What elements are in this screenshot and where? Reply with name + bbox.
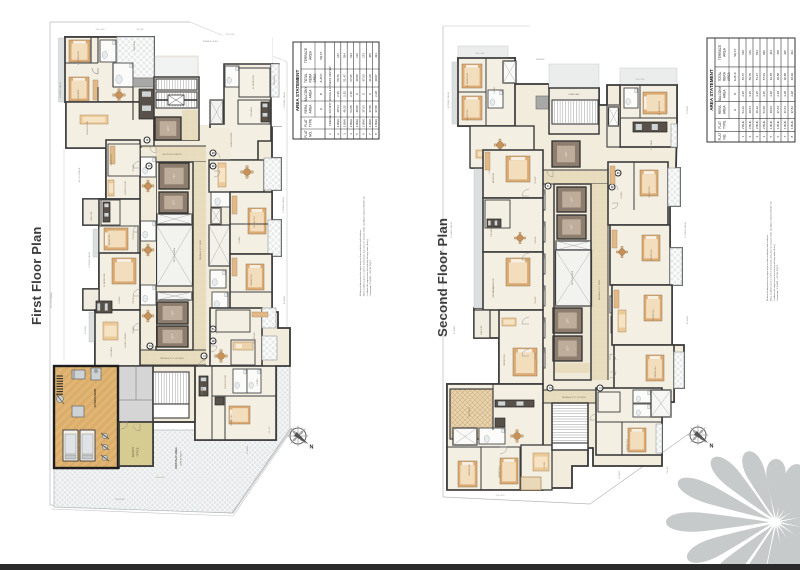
svg-text:- Minor variations up to (+/-): - Minor variations up to (+/-) 3% in act… [362, 195, 365, 297]
svg-text:1 BHK: 1 BHK [790, 121, 794, 129]
svg-text:2.28: 2.28 [790, 91, 794, 97]
svg-text:54.42: 54.42 [741, 106, 745, 114]
svg-text:30M W.LLB STATION: 30M W.LLB STATION [162, 153, 182, 156]
svg-text:TOILET: TOILET [133, 326, 135, 334]
svg-text:37.82: 37.82 [790, 106, 794, 114]
svg-text:50.79: 50.79 [336, 74, 340, 82]
svg-text:A: A [319, 108, 323, 110]
svg-text:M. BEDROOM: M. BEDROOM [78, 51, 80, 65]
svg-text:BEDROOM: BEDROOM [493, 286, 495, 297]
svg-text:BEDROOM: BEDROOM [655, 366, 657, 377]
svg-text:LIFT: LIFT [166, 125, 170, 131]
svg-text:PASSAGE 4 FT. WIDE: PASSAGE 4 FT. WIDE [199, 239, 202, 260]
svg-text:BEDROOM: BEDROOM [493, 173, 495, 184]
svg-text:2.25: 2.25 [762, 91, 766, 97]
svg-text:BEDROOM: BEDROOM [231, 414, 233, 425]
svg-text:- All internal dimensions for: - All internal dimensions for carpet are… [359, 229, 362, 297]
svg-text:3'6 WIDE: 3'6 WIDE [247, 445, 249, 454]
svg-text:A: A [733, 109, 737, 111]
svg-text:BEDROOM: BEDROOM [504, 354, 506, 365]
svg-text:A+B=C: A+B=C [319, 73, 323, 82]
svg-text:LIVING: LIVING [621, 191, 623, 198]
svg-text:11'0 x 12'6: 11'0 x 12'6 [226, 34, 235, 36]
svg-text:M. BEDROOM: M. BEDROOM [104, 273, 106, 286]
svg-text:AREA: AREA [722, 89, 726, 99]
svg-text:9'0 x 8'6: 9'0 x 8'6 [137, 29, 144, 31]
svg-text:1 BHK: 1 BHK [362, 119, 366, 127]
svg-text:BEDROOM: BEDROOM [254, 216, 256, 227]
svg-text:2.25: 2.25 [755, 91, 759, 97]
svg-text:6'0 x 4'0: 6'0 x 4'0 [667, 467, 669, 474]
svg-text:LIVING: LIVING [257, 378, 259, 385]
svg-text:2: 2 [548, 387, 552, 389]
svg-text:KITCHEN: KITCHEN [202, 385, 204, 395]
svg-text:TOILET: TOILET [535, 236, 537, 244]
svg-text:LIVING / DINING: LIVING / DINING [125, 332, 127, 348]
svg-text:4'0 WIDE CHAJJA: 4'0 WIDE CHAJJA [59, 81, 62, 97]
svg-text:2.25: 2.25 [336, 91, 340, 97]
svg-text:FLAT: FLAT [304, 119, 308, 127]
svg-text:KIDS PLAY AREA: KIDS PLAY AREA [174, 447, 178, 469]
svg-text:37.63: 37.63 [776, 106, 780, 114]
svg-text:TERRACE: TERRACE [535, 58, 545, 61]
svg-text:2.25: 2.25 [349, 91, 353, 97]
svg-text:50.79: 50.79 [748, 73, 752, 81]
svg-text:- Conversion: 1 SQ.MT. = 10.76: - Conversion: 1 SQ.MT. = 10.764 SQ.FT. [369, 259, 372, 297]
svg-text:40.07: 40.07 [374, 74, 378, 82]
svg-text:SQ.FT.: SQ.FT. [733, 48, 737, 57]
svg-text:4'0 WIDE CHAJJA: 4'0 WIDE CHAJJA [447, 91, 450, 107]
svg-text:5'0 WIDE CHAJJA: 5'0 WIDE CHAJJA [282, 196, 285, 212]
svg-text:4'0 WIDE: 4'0 WIDE [284, 295, 286, 304]
svg-text:LIVING ROOM: LIVING ROOM [619, 103, 621, 117]
svg-text:13'6 x 10'0: 13'6 x 10'0 [95, 29, 104, 31]
svg-text:KITCHEN: KITCHEN [251, 107, 253, 117]
svg-text:B: B [733, 93, 737, 95]
svg-text:11'0 x 12'6: 11'0 x 12'6 [636, 79, 645, 81]
svg-text:TERRACE: TERRACE [273, 74, 276, 85]
svg-text:M. BEDROOM: M. BEDROOM [253, 75, 255, 89]
svg-text:5'0 WIDE CHAJJA: 5'0 WIDE CHAJJA [88, 251, 91, 267]
svg-text:LIFT: LIFT [570, 196, 574, 202]
svg-text:51.47: 51.47 [342, 74, 346, 82]
svg-text:- It reflects the carpet areas: - It reflects the carpet areas are inclu… [366, 238, 369, 297]
svg-text:- Conversion: 1 SQ.MT. = 10.76: - Conversion: 1 SQ.MT. = 10.764 SQ.FT. [776, 264, 779, 302]
svg-text:BALCONY: BALCONY [90, 211, 93, 221]
svg-text:15'0 x 42'6: 15'0 x 42'6 [495, 495, 504, 497]
svg-text:5'0 WIDE CHAJJA: 5'0 WIDE CHAJJA [283, 91, 286, 107]
svg-text:594: 594 [342, 53, 346, 58]
svg-text:5: 5 [616, 172, 620, 174]
svg-text:PASSAGE 4 FT 6 IN WIDE: PASSAGE 4 FT 6 IN WIDE [160, 357, 185, 360]
svg-text:478: 478 [776, 50, 780, 55]
svg-text:TERRACE: TERRACE [304, 48, 308, 63]
svg-text:15'0 x 42'6: 15'0 x 42'6 [155, 477, 164, 479]
svg-text:2.28: 2.28 [776, 91, 780, 97]
svg-text:39.88: 39.88 [783, 73, 787, 81]
svg-text:AREA: AREA [308, 104, 312, 114]
svg-text:LIFT: LIFT [570, 224, 574, 230]
svg-text:BEDROOM: BEDROOM [251, 274, 253, 285]
svg-text:594: 594 [755, 50, 759, 55]
svg-text:SOCIETY: SOCIETY [132, 446, 135, 457]
svg-text:AREA STATEMENT: AREA STATEMENT [295, 70, 300, 112]
svg-text:RERA: RERA [304, 104, 308, 114]
svg-text:FLAT: FLAT [718, 133, 722, 141]
svg-text:TERRACE: TERRACE [718, 45, 722, 60]
svg-text:Second Floor Plan: Second Floor Plan [435, 218, 450, 337]
svg-text:37.80: 37.80 [374, 105, 378, 113]
svg-text:BALCONY: BALCONY [304, 86, 308, 102]
svg-text:LIVING ROOM: LIVING ROOM [231, 133, 233, 148]
svg-text:5'0 WIDE CHAJJA: 5'0 WIDE CHAJJA [684, 221, 687, 237]
svg-text:4: 4 [145, 139, 149, 141]
svg-text:31.90: 31.90 [368, 74, 372, 82]
svg-text:2 BHK: 2 BHK [342, 119, 346, 127]
svg-text:4'0 WIDE: 4'0 WIDE [454, 325, 456, 334]
svg-text:BALCONY: BALCONY [480, 325, 483, 335]
svg-text:TOILET: TOILET [133, 232, 135, 240]
svg-text:PASSAGE 5 FT. WIDE: PASSAGE 5 FT. WIDE [598, 279, 601, 300]
svg-text:BEDROOM: BEDROOM [467, 109, 469, 120]
svg-text:2.25: 2.25 [342, 91, 346, 97]
svg-text:BEDROOM: BEDROOM [109, 234, 111, 245]
svg-text:LIFT: LIFT [172, 199, 176, 205]
svg-text:TOTAL: TOTAL [304, 73, 308, 83]
svg-text:BALCONY: BALCONY [718, 85, 722, 101]
svg-text:42.78: 42.78 [769, 73, 773, 81]
svg-text:AREA: AREA [308, 50, 312, 60]
svg-text:147: 147 [336, 53, 340, 58]
svg-text:TOILET: TOILET [535, 296, 537, 304]
svg-text:48.00: 48.00 [355, 74, 359, 82]
svg-text:N: N [710, 444, 714, 450]
svg-text:TYPE: TYPE [722, 121, 726, 129]
svg-text:CHILDREN: CHILDREN [78, 89, 80, 100]
svg-text:BEDROOM: BEDROOM [649, 186, 651, 197]
svg-text:40.02: 40.02 [790, 73, 794, 81]
svg-text:829: 829 [762, 50, 766, 55]
svg-text:TERRACE: TERRACE [468, 406, 471, 417]
svg-text:N: N [310, 445, 314, 451]
svg-text:57.93: 57.93 [762, 73, 766, 81]
svg-text:NO.: NO. [308, 131, 312, 137]
svg-text:53.68: 53.68 [762, 106, 766, 114]
svg-text:B: B [319, 93, 323, 95]
svg-text:49.22: 49.22 [342, 105, 346, 113]
svg-text:LIVING: LIVING [544, 461, 546, 468]
svg-text:LIVING ROOM: LIVING ROOM [225, 375, 227, 389]
svg-text:465: 465 [368, 53, 372, 58]
svg-text:2 BHK: 2 BHK [762, 121, 766, 129]
svg-text:173: 173 [362, 53, 366, 58]
svg-text:KITCHEN: KITCHEN [651, 140, 653, 150]
svg-text:GYMNASIUM: GYMNASIUM [93, 388, 97, 407]
svg-text:LIFT: LIFT [566, 345, 570, 351]
svg-text:LIFT: LIFT [564, 151, 568, 157]
svg-text:1 BHK: 1 BHK [374, 119, 378, 127]
svg-text:RERA: RERA [718, 104, 722, 114]
svg-text:3'6 WIDE: 3'6 WIDE [619, 470, 621, 479]
svg-text:56.67: 56.67 [741, 73, 745, 81]
svg-text:4'0 WIDE: 4'0 WIDE [687, 315, 689, 324]
svg-text:2 BHK: 2 BHK [748, 121, 752, 129]
svg-text:6: 6 [610, 186, 614, 188]
svg-text:- Minor variations up to (+/-): - Minor variations up to (+/-) 3% in act… [769, 200, 772, 302]
svg-text:REFUGE AREA: REFUGE AREA [173, 247, 176, 262]
svg-text:2: 2 [148, 345, 152, 347]
svg-text:LIVING: LIVING [119, 296, 121, 303]
svg-text:2 BHK: 2 BHK [355, 119, 359, 127]
svg-text:8: 8 [211, 340, 215, 342]
svg-text:RERA: RERA [308, 73, 312, 83]
svg-text:NO.: NO. [722, 134, 726, 140]
svg-text:AREA: AREA [722, 47, 726, 57]
svg-text:TYPE: TYPE [308, 119, 312, 127]
svg-text:53.68: 53.68 [349, 105, 353, 113]
svg-text:37.63: 37.63 [783, 106, 787, 114]
svg-text:6: 6 [211, 165, 215, 167]
svg-text:LIFT: LIFT [171, 333, 175, 339]
svg-text:TOILET: TOILET [535, 352, 537, 360]
svg-text:5'0 WIDE: 5'0 WIDE [687, 105, 689, 114]
svg-text:2.25: 2.25 [741, 91, 745, 97]
svg-text:2 BHK: 2 BHK [349, 119, 353, 127]
svg-text:37.80: 37.80 [368, 105, 372, 113]
svg-text:37.63: 37.63 [362, 74, 366, 82]
svg-text:TOILET: TOILET [535, 176, 537, 184]
svg-text:- It reflects the carpet areas: - It reflects the carpet areas are inclu… [773, 243, 776, 302]
svg-text:3: 3 [147, 165, 151, 167]
svg-text:37.63: 37.63 [362, 105, 366, 113]
svg-text:1: 1 [598, 387, 602, 389]
svg-text:KIDS PLAY: KIDS PLAY [115, 498, 125, 501]
svg-text:2.28: 2.28 [769, 91, 773, 97]
svg-text:CRECHE, SOCIETY OFFICE & FITNE: CRECHE, SOCIETY OFFICE & FITNESS CENTER [328, 66, 332, 126]
svg-text:A+B=C: A+B=C [733, 72, 737, 81]
svg-text:634: 634 [349, 53, 353, 58]
svg-text:13'6 x 10'0: 13'6 x 10'0 [475, 53, 484, 55]
svg-text:BEDROOM: BEDROOM [651, 249, 653, 260]
svg-text:LIFT: LIFT [171, 310, 175, 316]
svg-text:M. BEDROOM: M. BEDROOM [467, 73, 469, 87]
svg-text:425: 425 [783, 50, 787, 55]
svg-text:2.28: 2.28 [374, 91, 378, 97]
svg-text:OFFICE: OFFICE [137, 447, 140, 456]
svg-text:STAIRCASE: STAIRCASE [568, 93, 580, 96]
svg-text:434: 434 [769, 50, 773, 55]
svg-text:48.00: 48.00 [355, 105, 359, 113]
svg-text:2 BHK: 2 BHK [755, 121, 759, 129]
svg-text:49.22: 49.22 [755, 106, 759, 114]
svg-text:First Floor Plan: First Floor Plan [29, 226, 44, 325]
svg-text:149: 149 [748, 50, 752, 55]
svg-text:BEDROOM: BEDROOM [627, 439, 629, 450]
svg-text:57.95: 57.95 [349, 74, 353, 82]
svg-text:KITCHEN: KITCHEN [111, 347, 113, 357]
svg-text:- All internal dimensions for: - All internal dimensions for carpet are… [766, 234, 769, 302]
svg-text:LIVING: LIVING [494, 86, 496, 93]
svg-text:1: 1 [202, 355, 206, 357]
svg-text:PASSAGE 4 FT 6 IN WIDE: PASSAGE 4 FT 6 IN WIDE [562, 396, 587, 399]
svg-text:FLAT: FLAT [718, 121, 722, 129]
svg-text:4'0 WIDE: 4'0 WIDE [85, 325, 87, 334]
svg-text:51.47: 51.47 [755, 73, 759, 81]
svg-text:4'0 x 6'0 CHAJJA: 4'0 x 6'0 CHAJJA [78, 167, 81, 182]
svg-text:FLAT: FLAT [304, 130, 308, 138]
svg-text:TOTAL: TOTAL [718, 71, 722, 81]
svg-text:LIFT: LIFT [172, 173, 176, 179]
svg-text:1 BHK: 1 BHK [769, 121, 773, 129]
svg-text:48.54: 48.54 [748, 106, 752, 114]
svg-text:39.88: 39.88 [776, 73, 780, 81]
svg-text:BEDROOM: BEDROOM [111, 154, 113, 165]
svg-text:LIVING: LIVING [239, 236, 241, 243]
svg-text:1059.85 SQ.FT.: 1059.85 SQ.FT. [181, 450, 183, 466]
svg-text:REFUGE AREA: REFUGE AREA [571, 270, 574, 285]
svg-text:RERA: RERA [722, 71, 726, 81]
svg-text:1 BHK: 1 BHK [776, 121, 780, 129]
svg-text:BEDROOM: BEDROOM [254, 332, 256, 343]
svg-text:TERRACE: TERRACE [133, 40, 136, 51]
svg-text:2.25: 2.25 [748, 91, 752, 97]
svg-text:7: 7 [546, 185, 550, 187]
svg-text:SQ.FT.: SQ.FT. [319, 51, 323, 60]
svg-text:1 BHK: 1 BHK [368, 119, 372, 127]
svg-text:LIVING ROOM: LIVING ROOM [87, 121, 89, 135]
svg-text:BEDROOM: BEDROOM [499, 466, 501, 477]
svg-text:431: 431 [374, 53, 378, 58]
svg-text:BEDROOM: BEDROOM [469, 464, 471, 475]
svg-text:6'0 x 4'0: 6'0 x 4'0 [269, 427, 271, 434]
svg-text:AREA: AREA [722, 105, 726, 115]
svg-text:5'0 WIDE CHAJJA: 5'0 WIDE CHAJJA [450, 221, 453, 237]
svg-text:BEDROOM: BEDROOM [653, 309, 655, 320]
svg-text:TOILET: TOILET [133, 164, 135, 172]
svg-text:AREA STATEMENT: AREA STATEMENT [709, 69, 714, 111]
svg-text:116: 116 [355, 53, 359, 58]
svg-text:431: 431 [790, 50, 794, 55]
svg-text:610: 610 [741, 50, 745, 55]
svg-text:40.03: 40.03 [769, 106, 773, 114]
svg-text:1 BHK: 1 BHK [783, 121, 787, 129]
svg-text:2 BHK: 2 BHK [336, 119, 340, 127]
svg-text:M. BEDROOM: M. BEDROOM [659, 101, 661, 115]
svg-text:KITCHEN: KITCHEN [491, 227, 493, 237]
svg-text:TERRACE OPEN: TERRACE OPEN [203, 40, 219, 43]
svg-text:2.28: 2.28 [783, 91, 787, 97]
svg-text:2 BHK: 2 BHK [741, 121, 745, 129]
svg-text:TOILET: TOILET [133, 296, 135, 304]
svg-text:48.54: 48.54 [336, 105, 340, 113]
svg-text:LIVING ROOM: LIVING ROOM [125, 181, 127, 195]
svg-text:PLOT BOUNDARY: PLOT BOUNDARY [50, 291, 53, 308]
svg-text:LIFT: LIFT [566, 317, 570, 323]
svg-text:AREA: AREA [308, 89, 312, 99]
